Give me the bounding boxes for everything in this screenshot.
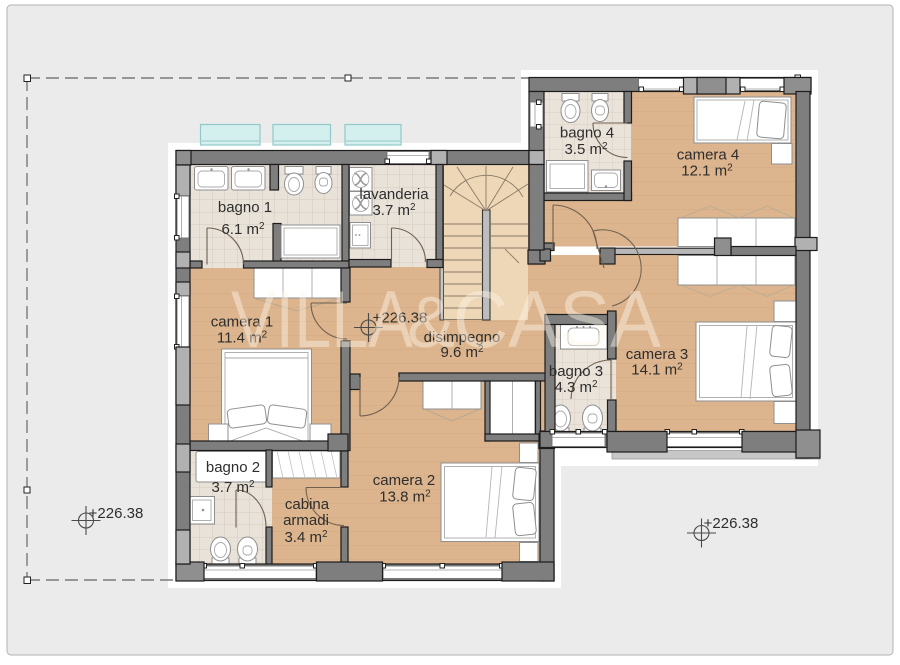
svg-text:3.7 m2: 3.7 m2 — [372, 202, 416, 219]
svg-text:VILLA: VILLA — [231, 275, 413, 365]
svg-text:CASA: CASA — [453, 275, 661, 365]
svg-text:bagno 1: bagno 1 — [218, 199, 272, 216]
svg-text:13.8 m2: 13.8 m2 — [379, 489, 431, 506]
svg-text:bagno 2: bagno 2 — [206, 459, 260, 476]
svg-text:lavanderia: lavanderia — [359, 186, 429, 203]
svg-text:3.5 m2: 3.5 m2 — [564, 141, 608, 158]
svg-text:12.1 m2: 12.1 m2 — [681, 163, 733, 180]
svg-text:4.3 m2: 4.3 m2 — [554, 379, 598, 396]
svg-text:bagno 3: bagno 3 — [549, 363, 603, 380]
svg-text:&: & — [407, 283, 455, 363]
svg-text:armadi: armadi — [283, 512, 329, 529]
svg-text:+226.38: +226.38 — [704, 515, 759, 532]
svg-text:+226.38: +226.38 — [89, 505, 144, 522]
svg-text:cabina: cabina — [285, 496, 330, 513]
svg-text:6.1 m2: 6.1 m2 — [221, 221, 265, 238]
svg-text:3.7 m2: 3.7 m2 — [211, 479, 255, 496]
svg-text:bagno 4: bagno 4 — [560, 125, 614, 142]
svg-text:camera 4: camera 4 — [677, 147, 740, 164]
svg-text:camera 2: camera 2 — [373, 472, 436, 489]
svg-text:3.4 m2: 3.4 m2 — [284, 529, 328, 546]
